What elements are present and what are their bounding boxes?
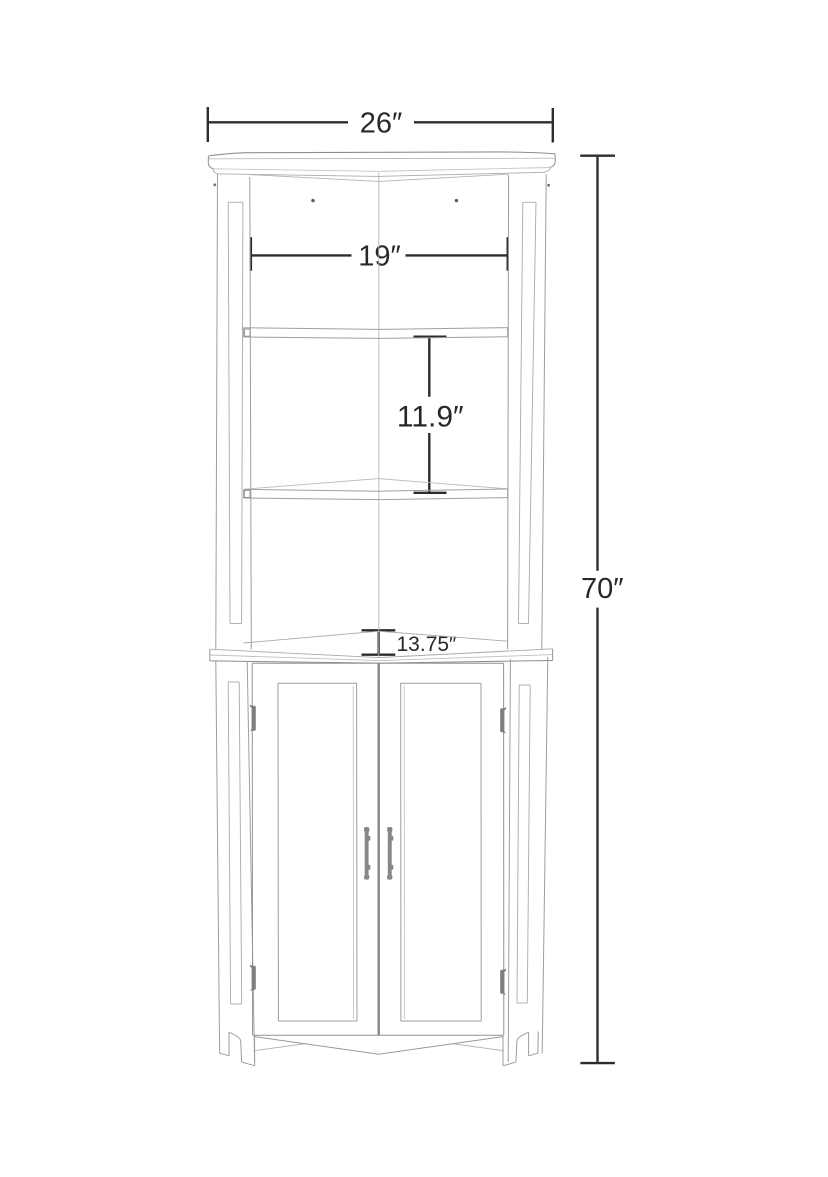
svg-text:26″: 26″ [360, 108, 403, 140]
svg-text:19″: 19″ [358, 241, 401, 273]
svg-text:70″: 70″ [581, 573, 624, 605]
svg-text:11.9″: 11.9″ [397, 401, 464, 434]
